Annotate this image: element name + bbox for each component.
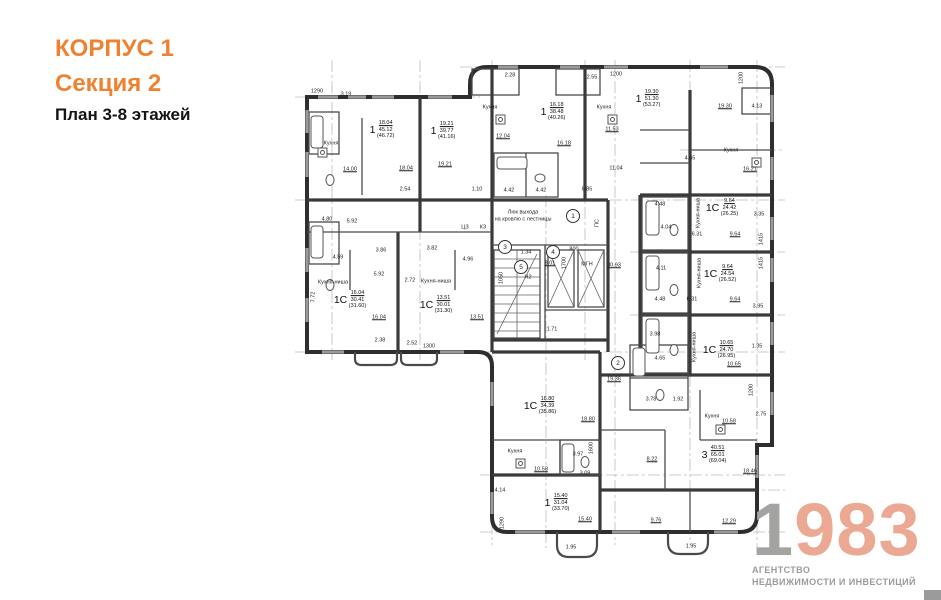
plan-label: Люк выхода [508,210,538,216]
plan-label: 3.97 [573,452,584,458]
apartment-areas: 40.5165.01(69.04) [709,445,726,465]
apartment-areas: 15.4031.04(33.70) [552,493,569,513]
plan-label: 19.21 [438,162,452,168]
plan-label: 14.00 [343,167,357,173]
apartment-type: 1 [431,125,437,137]
apartment-label: 1С13.5130.01(31.30) [420,295,452,315]
plan-label: 16.18 [557,141,571,147]
plan-label: 4.13 [752,104,763,110]
apartment-area-value: (26.25) [721,211,738,218]
logo-digit-1: 1 [752,488,794,571]
plan-label: 1.71 [547,327,558,333]
plan-label: 10.58 [722,419,736,425]
plan-label: 4.11 [656,266,666,272]
plan-label: 9.76 [651,518,662,524]
plan-label: 3.98 [650,332,661,338]
apartment-area-value: (35.86) [539,409,556,416]
plan-label: Кухня [724,148,739,154]
apartment-areas: 18.0445.12(46.72) [377,120,394,140]
plan-label: 1290 [500,517,506,529]
apartment-area-value: 24.54 [719,271,736,278]
plan-label: 2.38 [375,338,386,344]
apartment-area-value: 19.21 [438,121,455,128]
apartment-areas: 10.6524.70(26.95) [718,340,735,360]
plan-label: 10.65 [727,362,741,368]
logo-year: 1983 [752,496,938,564]
apartment-area-value: 34.39 [539,403,556,410]
apartment-type: 1 [545,497,551,509]
apartment-area-value: 16.18 [548,102,565,109]
plan-label: 19.30 [718,104,732,110]
plan-label: 30.93 [607,263,621,269]
plan-label: 11.04 [609,166,622,172]
plan-label: 1290 [311,89,323,95]
floor-plan-page: КОРПУС 1 Секция 2 План 3-8 этажей [0,0,941,600]
position-marker: 1 [566,209,580,223]
plan-label: Кухня [324,141,339,147]
apartment-area-value: (33.70) [552,506,569,513]
apartment-area-value: (41.16) [438,134,455,141]
plan-label: Кухня [483,105,498,111]
apartment-area-value: 51.30 [643,96,660,103]
plan-label: 16.21 [743,167,757,173]
apartment-area-value: 31.04 [552,500,569,507]
logo-digits-983: 983 [794,488,920,571]
apartment-type: 1С [703,344,716,356]
plan-label: 2.52 [407,341,418,347]
apartment-area-value: 30.01 [435,302,452,309]
plan-label: 1050 [499,272,505,284]
corner-mark [924,590,941,600]
position-marker: 3 [498,240,512,254]
plan-label: 2.72 [405,278,416,284]
plan-label: 6.85 [582,187,593,193]
apartment-label: 1С9.6424.54(26.52) [704,264,736,284]
apartment-label: 119.2139.77(41.16) [431,121,456,141]
apartment-type: 3 [702,449,708,461]
plan-label: 1200 [749,384,755,396]
plan-label: 16.04 [372,315,386,321]
apartment-type: 1С [706,202,719,214]
apartment-area-value: 18.80 [539,396,556,403]
apartment-area-value: 39.77 [438,128,455,135]
plan-label: 9.64 [730,297,741,303]
position-marker: 2 [611,356,625,370]
apartment-label: 1С16.0430.41(31.60) [334,290,366,310]
plan-label: 6.31 [687,297,698,303]
plan-label: Кухня [705,414,720,420]
apartment-label: 119.3051.30(53.27) [636,89,661,109]
plan-label: 3.86 [376,248,387,254]
apartment-area-value: (31.30) [435,308,452,315]
apartment-area-value: (31.60) [349,303,366,310]
apartment-areas: 19.3051.30(53.27) [643,89,660,109]
apartment-label: 340.5165.01(69.04) [702,445,727,465]
plan-label: Кухня [597,105,612,111]
apartment-area-value: 19.30 [643,89,660,96]
apartment-area-value: 9.64 [719,264,736,271]
plan-label: 3.82 [427,246,438,252]
apartment-area-value: 45.12 [377,127,394,134]
plan-label: 12.04 [496,134,510,140]
plan-label: 1200 [610,72,622,78]
plan-label: 4.04 [661,225,672,231]
plan-label: 10.58 [534,467,548,473]
plan-label: 3.78 [646,397,657,403]
plan-label: 1.34 [521,250,532,256]
apartment-area-value: (46.72) [377,133,394,140]
plan-label: 1.92 [673,397,684,403]
apartment-area-value: (26.52) [719,277,736,284]
apartment-area-value: 24.70 [718,347,735,354]
apartment-label: 115.4031.04(33.70) [545,493,570,513]
plan-label: 4.48 [655,297,666,303]
apartment-area-value: 13.51 [435,295,452,302]
plan-label: 2.54 [400,187,411,193]
apartment-label: 1С18.8034.39(35.86) [524,396,556,416]
logo-tagline-line2: НЕДВИЖИМОСТИ И ИНВЕСТИЦИЙ [752,577,938,589]
plan-label: 2.28 [505,73,516,79]
plan-label: 4.96 [463,257,474,263]
plan-label: Кухня-ниша [318,280,348,286]
plan-label: 5.92 [347,219,358,225]
plan-label: 4.48 [655,202,666,208]
plan-label: 4.59 [333,255,344,261]
plan-label: 1.35 [752,344,763,350]
plan-label: 11.53 [605,127,618,133]
plan-label: 15.40 [578,517,592,523]
apartment-area-value: (26.95) [718,353,735,360]
apartment-area-value: 38.48 [548,109,565,116]
plan-label: 6.31 [692,232,703,238]
apartment-area-value: 15.40 [552,493,569,500]
plan-label: 3.35 [754,212,765,218]
apartment-areas: 13.5130.01(31.30) [435,295,452,315]
apartment-areas: 9.6424.42(26.25) [721,198,738,218]
plan-label: 3.19 [341,92,352,98]
plan-label: 4.14 [495,488,506,494]
plan-label: 7.72 [311,292,317,303]
apartment-areas: 19.2139.77(41.16) [438,121,455,141]
plan-label: КЗ [480,225,486,231]
plan-label: 1300 [423,344,435,350]
apartment-areas: 16.1838.48(40.26) [548,102,565,122]
apartment-area-value: 30.41 [349,297,366,304]
apartment-type: 1С [524,400,537,412]
apartment-areas: 18.8034.39(35.86) [539,396,556,416]
plan-label: Кухня-ниша [421,279,451,285]
plan-label: 5.92 [374,272,385,278]
plan-label: 4.42 [536,188,547,194]
plan-label: 18.80 [581,417,595,423]
apartment-label: 118.0445.12(46.72) [370,120,395,140]
plan-label: Кухня-ниша [696,198,702,228]
plan-label: 1.95 [566,545,577,551]
plan-label: Кухня-ниша [692,332,698,362]
plan-label: на кровлю с лестницы [495,217,552,223]
apartment-area-value: 40.51 [709,445,726,452]
plan-label: 4.65 [655,356,666,362]
plan-label: 1415 [759,257,765,269]
plan-label: 3.09 [580,471,591,477]
plan-label: ЦЗ [461,225,468,231]
apartment-area-value: 9.64 [721,198,738,205]
apartment-areas: 16.0430.41(31.60) [349,290,366,310]
apartment-label: 1С9.6424.42(26.25) [706,198,738,218]
plan-label: 1.10 [472,187,483,193]
plan-label: 18.46 [743,469,757,475]
apartment-type: 1 [370,124,376,136]
apartment-area-value: 10.65 [718,340,735,347]
position-marker: 4 [546,245,560,259]
apartment-type: 1 [541,106,547,118]
plan-label: Кухня [508,449,523,455]
plan-label: 4.80 [322,217,333,223]
plan-label: 2.75 [756,412,767,418]
apartment-type: 1С [420,299,433,311]
apartment-area-value: (69.04) [709,458,726,465]
plan-label: 19.36 [607,377,621,383]
plan-label: ПС [595,219,601,227]
plan-label: 1700 [562,257,568,269]
plan-label: 4.42 [504,188,515,194]
plan-label: 4.65 [685,156,696,162]
plan-label: 1415 [759,233,765,245]
plan-label: МГН [581,262,593,268]
apartment-areas: 9.6424.54(26.52) [719,264,736,284]
plan-label: 13.51 [470,315,484,321]
plan-label: 1200 [739,72,745,84]
apartment-type: 1 [636,93,642,105]
position-marker: 5 [514,260,528,274]
elevator-shafts [548,250,604,307]
apartment-type: 1С [334,294,347,306]
plan-label: 2.55 [587,75,598,81]
plan-label: 1600 [589,442,595,454]
apartment-area-value: 24.42 [721,205,738,212]
apartment-area-value: 65.01 [709,452,726,459]
plan-label: 8.01 [545,261,556,267]
apartment-type: 1С [704,268,717,280]
apartment-label: 116.1838.48(40.26) [541,102,566,122]
apartment-label: 1С10.6524.70(26.95) [703,340,735,360]
plan-label: 1.95 [686,544,697,550]
apartment-area-value: 18.04 [377,120,394,127]
apartment-area-value: (53.27) [643,102,660,109]
apartment-area-value: (40.26) [548,115,565,122]
agency-logo: 1983 АГЕНТСТВО НЕДВИЖИМОСТИ И ИНВЕСТИЦИЙ [752,496,938,588]
plan-label: 12.29 [722,519,736,525]
plan-label: 800 [569,247,578,253]
plan-label: Кухня-ниша [697,258,703,288]
plan-label: 18.04 [399,166,413,172]
apartment-area-value: 16.04 [349,290,366,297]
plan-label: 3.95 [753,304,764,310]
plan-label: Н2 [524,275,531,281]
plan-label: 8.22 [647,457,658,463]
plan-label: 9.64 [730,232,741,238]
